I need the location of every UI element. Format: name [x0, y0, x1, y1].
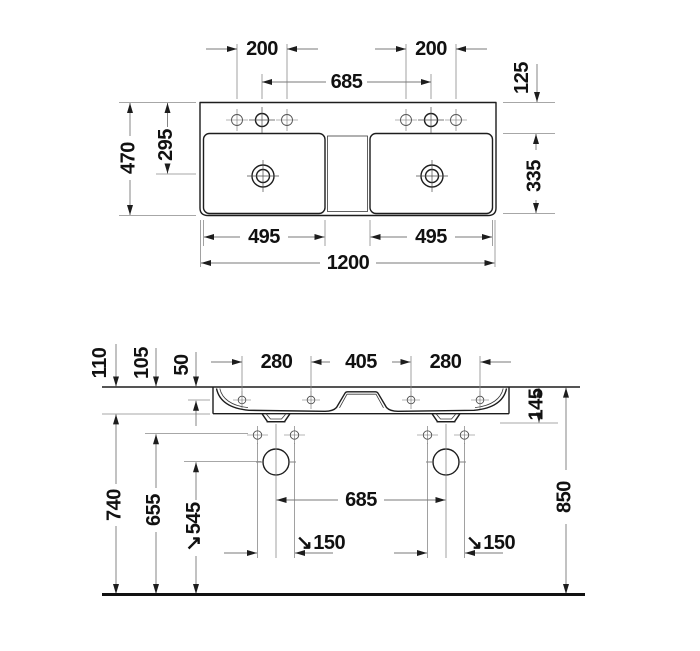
top-view-dimension-labels: 200 200 685 125 335 470 295 495 495 1200	[118, 38, 546, 274]
dim-underside-height: 740	[104, 489, 126, 521]
dim-bowl-width-right: 495	[415, 226, 447, 248]
dim-outlet-drop: 145	[526, 388, 548, 420]
tap-holes-top	[226, 107, 467, 133]
dim-drop-inner: 105	[131, 347, 153, 379]
technical-drawing-canvas: 200 200 685 125 335 470 295 495 495 1200	[0, 0, 700, 651]
leader-arrow-icon: ↘	[296, 532, 312, 554]
front-view-dimension-labels: 110 105 50 280 405 280 145 740 655 ↘545 …	[89, 347, 576, 554]
leader-arrow-icon: ↘	[183, 535, 205, 551]
dim-overall-depth: 470	[118, 142, 140, 174]
dim-supply-spacing-left: ↘150	[296, 532, 346, 554]
fixing-holes-front	[233, 391, 489, 409]
dim-back-ledge-depth: 125	[511, 62, 533, 94]
dim-supply-spacing-right: ↘150	[466, 532, 516, 554]
dim-drain-center-distance: 685	[345, 489, 377, 511]
supply-connections-front	[247, 426, 475, 444]
dim-supply-height: 655	[143, 494, 165, 526]
dim-fixing-spacing-left: 280	[261, 351, 293, 373]
dim-drop-outer: 110	[89, 347, 111, 378]
dim-bowl-width-left: 495	[248, 226, 280, 248]
technical-drawing-page: 200 200 685 125 335 470 295 495 495 1200	[0, 0, 700, 651]
drain-holes-top	[247, 160, 448, 192]
front-view: 110 105 50 280 405 280 145 740 655 ↘545 …	[89, 344, 585, 595]
dim-overall-width: 1200	[327, 252, 370, 274]
washbasin-front-outline	[102, 387, 580, 422]
dim-drain-setback: 295	[155, 129, 177, 161]
washbasin-top-outline	[200, 103, 496, 216]
dim-tap-center-distance: 685	[331, 71, 363, 93]
dim-fixing-spacing-center: 405	[345, 351, 377, 373]
leader-arrow-icon: ↘	[466, 532, 482, 554]
trap-outlets-front	[256, 449, 466, 475]
dim-bowl-inner-depth: 335	[524, 160, 546, 192]
dim-rim-height: 850	[554, 481, 576, 513]
dim-fixing-spacing-right: 280	[430, 351, 462, 373]
dim-tap-spacing-right: 200	[415, 38, 447, 60]
front-view-dimension-lines	[116, 344, 566, 594]
top-view: 200 200 685 125 335 470 295 495 495 1200	[118, 38, 556, 274]
dim-tap-spacing-left: 200	[246, 38, 278, 60]
dim-trap-height: ↘545	[183, 502, 205, 552]
dim-fixing-drop: 50	[171, 354, 193, 376]
